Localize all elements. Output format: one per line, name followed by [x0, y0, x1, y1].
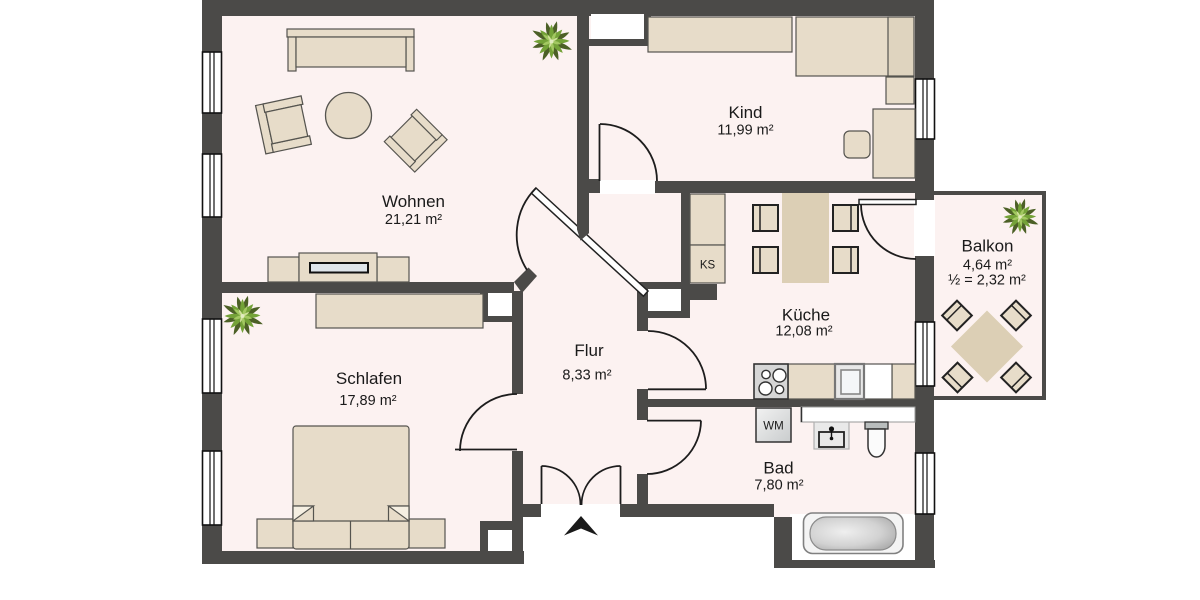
svg-text:WM: WM: [763, 421, 783, 433]
svg-text:Bad: Bad: [763, 459, 793, 478]
svg-text:KS: KS: [700, 260, 716, 272]
svg-text:Küche: Küche: [782, 306, 830, 325]
svg-text:½ = 2,32 m²: ½ = 2,32 m²: [948, 273, 1026, 289]
svg-text:Flur: Flur: [574, 341, 604, 360]
svg-text:17,89 m²: 17,89 m²: [339, 393, 396, 409]
svg-text:12,08 m²: 12,08 m²: [775, 324, 832, 340]
svg-text:4,64 m²: 4,64 m²: [963, 258, 1012, 274]
svg-text:11,99 m²: 11,99 m²: [717, 123, 773, 139]
svg-text:Kind: Kind: [728, 103, 762, 122]
svg-text:Balkon: Balkon: [962, 237, 1014, 256]
svg-text:8,33 m²: 8,33 m²: [562, 368, 611, 384]
svg-text:21,21 m²: 21,21 m²: [385, 212, 442, 228]
svg-text:7,80 m²: 7,80 m²: [754, 478, 803, 494]
svg-text:Wohnen: Wohnen: [382, 192, 445, 211]
svg-text:Schlafen: Schlafen: [336, 369, 402, 388]
